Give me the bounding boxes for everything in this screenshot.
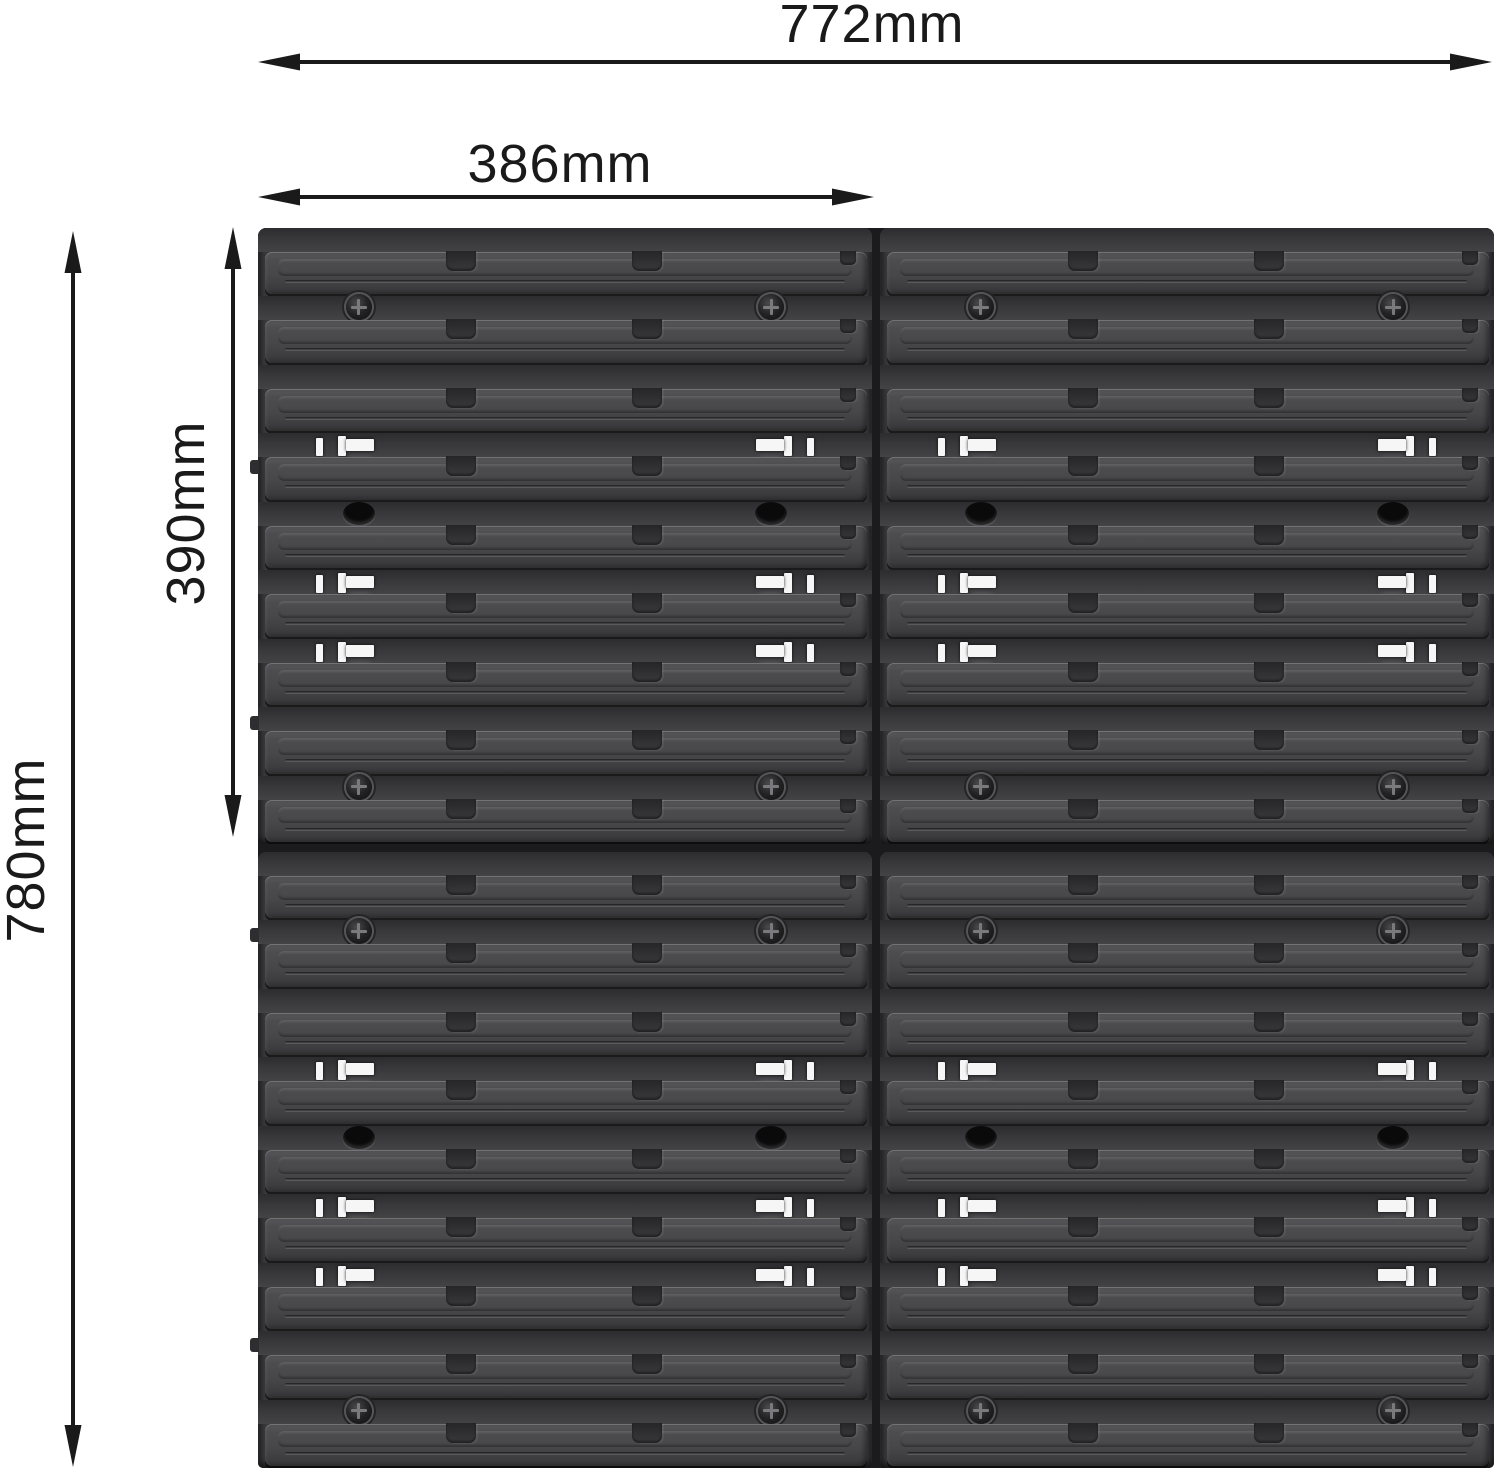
slat-row bbox=[880, 1194, 1494, 1262]
slat bbox=[265, 731, 867, 773]
slat-notch bbox=[1068, 943, 1098, 963]
slat-notch bbox=[1068, 251, 1098, 271]
slat-row bbox=[258, 707, 872, 775]
slat bbox=[265, 944, 867, 986]
slat bbox=[265, 389, 867, 431]
accessory-slot bbox=[784, 1266, 792, 1286]
accessory-slot-group bbox=[752, 571, 814, 593]
accessory-slot bbox=[338, 1060, 346, 1080]
slat bbox=[887, 663, 1489, 705]
slat-notch bbox=[840, 1286, 856, 1300]
slat bbox=[265, 1355, 867, 1397]
slat-notch bbox=[632, 525, 662, 545]
accessory-slot-group bbox=[1374, 1264, 1436, 1286]
accessory-slot-group bbox=[1374, 1058, 1436, 1080]
accessory-slot bbox=[1406, 1060, 1414, 1080]
accessory-slot bbox=[968, 1269, 996, 1281]
accessory-slot-group bbox=[752, 1195, 814, 1217]
accessory-slot bbox=[784, 1060, 792, 1080]
slat-notch bbox=[1068, 525, 1098, 545]
slat-ridge bbox=[278, 670, 852, 687]
half-width-label: 386mm bbox=[410, 136, 710, 192]
accessory-slot bbox=[1406, 1266, 1414, 1286]
accessory-slot bbox=[1406, 642, 1414, 662]
slat-ridge bbox=[278, 1431, 852, 1448]
slat-row bbox=[258, 502, 872, 570]
slat-notch bbox=[840, 456, 856, 470]
slat-notch bbox=[1254, 662, 1284, 682]
slat-notch bbox=[1462, 943, 1478, 957]
slat-groove bbox=[907, 972, 1467, 975]
mounting-screw-icon bbox=[968, 774, 994, 800]
accessory-slot bbox=[1378, 645, 1406, 657]
slat-recess bbox=[880, 1400, 1494, 1424]
slat-notch bbox=[632, 593, 662, 613]
slat bbox=[887, 457, 1489, 499]
slat-recess bbox=[258, 639, 872, 663]
accessory-slot bbox=[756, 576, 784, 588]
slat-recess bbox=[880, 776, 1494, 800]
mounting-screw-icon bbox=[758, 918, 784, 944]
slat-ridge bbox=[278, 883, 852, 900]
slat-recess bbox=[880, 365, 1494, 389]
slat-notch bbox=[1254, 730, 1284, 750]
accessory-slot bbox=[338, 1266, 346, 1286]
slat-ridge bbox=[900, 1088, 1474, 1105]
mounting-hole bbox=[965, 1126, 997, 1149]
slat-recess bbox=[880, 920, 1494, 944]
accessory-slot bbox=[960, 1266, 968, 1286]
accessory-slot-group bbox=[316, 434, 378, 456]
slat-notch bbox=[1254, 456, 1284, 476]
slat-notch bbox=[632, 456, 662, 476]
slat-groove bbox=[907, 1041, 1467, 1044]
slat-notch bbox=[1462, 1423, 1478, 1437]
slat-notch bbox=[840, 593, 856, 607]
accessory-slot bbox=[807, 1199, 814, 1217]
slat-recess bbox=[880, 989, 1494, 1013]
accessory-slot bbox=[316, 438, 323, 456]
slat-groove bbox=[907, 280, 1467, 283]
slat-ridge bbox=[900, 883, 1474, 900]
slat-row bbox=[258, 296, 872, 364]
accessory-slot bbox=[968, 439, 996, 451]
slat-notch bbox=[632, 1080, 662, 1100]
accessory-slot bbox=[938, 644, 945, 662]
accessory-slot bbox=[807, 1062, 814, 1080]
accessory-slot bbox=[960, 573, 968, 593]
slat-row bbox=[258, 1057, 872, 1125]
slat-row bbox=[880, 1057, 1494, 1125]
slat bbox=[887, 876, 1489, 918]
slat-notch bbox=[1462, 662, 1478, 676]
slat-ridge bbox=[900, 396, 1474, 413]
slat-groove bbox=[285, 622, 845, 625]
slat-ridge bbox=[900, 738, 1474, 755]
slat-notch bbox=[1068, 456, 1098, 476]
slat-groove bbox=[285, 972, 845, 975]
slat-notch bbox=[1254, 319, 1284, 339]
slat-groove bbox=[907, 1109, 1467, 1112]
slat-row bbox=[880, 296, 1494, 364]
accessory-slot-group bbox=[938, 1264, 1000, 1286]
slat-groove bbox=[907, 554, 1467, 557]
screw-slot bbox=[357, 923, 360, 939]
screw-slot bbox=[357, 1403, 360, 1419]
slat-groove bbox=[285, 348, 845, 351]
slat-recess bbox=[880, 502, 1494, 526]
slat-notch bbox=[840, 319, 856, 333]
slat-recess bbox=[258, 989, 872, 1013]
accessory-slot bbox=[1429, 1268, 1436, 1286]
slat-groove bbox=[285, 828, 845, 831]
slat-notch bbox=[632, 1012, 662, 1032]
slat-ridge bbox=[278, 464, 852, 481]
slat-recess bbox=[258, 1263, 872, 1287]
slat-ridge bbox=[278, 1294, 852, 1311]
slat-ridge bbox=[900, 327, 1474, 344]
accessory-slot bbox=[316, 644, 323, 662]
slat bbox=[265, 252, 867, 294]
slat-notch bbox=[840, 730, 856, 744]
total-width-arrow bbox=[256, 50, 1494, 74]
screw-slot bbox=[979, 299, 982, 315]
slat-notch bbox=[840, 525, 856, 539]
slat-groove bbox=[907, 417, 1467, 420]
accessory-slot bbox=[756, 1269, 784, 1281]
slat-notch bbox=[1462, 1217, 1478, 1231]
slat-ridge bbox=[900, 1157, 1474, 1174]
slat-notch bbox=[1462, 593, 1478, 607]
slat-ridge bbox=[278, 1157, 852, 1174]
accessory-slot bbox=[784, 642, 792, 662]
accessory-slot-group bbox=[752, 434, 814, 456]
accessory-slot bbox=[960, 642, 968, 662]
mounting-screw-icon bbox=[968, 1398, 994, 1424]
accessory-slot bbox=[338, 573, 346, 593]
half-width-arrow bbox=[256, 185, 876, 209]
accessory-slot-group bbox=[316, 1195, 378, 1217]
slat-row bbox=[258, 852, 872, 920]
screw-slot bbox=[1392, 923, 1395, 939]
slat-row bbox=[258, 228, 872, 296]
half-height-arrow bbox=[221, 225, 245, 839]
slat-notch bbox=[632, 1286, 662, 1306]
slat-row bbox=[880, 570, 1494, 638]
slat-notch bbox=[1254, 1080, 1284, 1100]
slat-notch bbox=[446, 799, 476, 819]
mounting-screw-icon bbox=[758, 774, 784, 800]
slat-notch bbox=[1462, 1286, 1478, 1300]
accessory-slot bbox=[968, 1063, 996, 1075]
slat-notch bbox=[840, 875, 856, 889]
slat-notch bbox=[446, 875, 476, 895]
accessory-slot bbox=[968, 576, 996, 588]
slat-groove bbox=[285, 1178, 845, 1181]
slat-recess bbox=[258, 707, 872, 731]
slat-notch bbox=[446, 1354, 476, 1374]
slat-notch bbox=[840, 251, 856, 265]
slat-notch bbox=[1462, 1012, 1478, 1026]
accessory-slot bbox=[938, 1268, 945, 1286]
accessory-slot bbox=[960, 1197, 968, 1217]
accessory-slot bbox=[1378, 439, 1406, 451]
slat-groove bbox=[907, 485, 1467, 488]
slat-notch bbox=[1068, 319, 1098, 339]
slat-recess bbox=[880, 296, 1494, 320]
screw-slot bbox=[770, 299, 773, 315]
slat-notch bbox=[840, 1423, 856, 1437]
accessory-slot bbox=[807, 644, 814, 662]
slat-ridge bbox=[900, 1294, 1474, 1311]
slat-notch bbox=[446, 319, 476, 339]
total-width-label: 772mm bbox=[722, 0, 1022, 52]
slatwall-panel bbox=[880, 228, 1494, 844]
mounting-screw-icon bbox=[1380, 774, 1406, 800]
slat-ridge bbox=[900, 533, 1474, 550]
slat-row bbox=[258, 639, 872, 707]
slat-recess bbox=[880, 852, 1494, 876]
slat-recess bbox=[880, 1126, 1494, 1150]
accessory-slot-group bbox=[752, 1264, 814, 1286]
screw-slot bbox=[979, 779, 982, 795]
slat-notch bbox=[1254, 1354, 1284, 1374]
slat-row bbox=[880, 1331, 1494, 1399]
slat-notch bbox=[840, 943, 856, 957]
slat-groove bbox=[285, 904, 845, 907]
slat-notch bbox=[840, 1080, 856, 1094]
slatwall-panel bbox=[258, 228, 872, 844]
slat-recess bbox=[880, 1057, 1494, 1081]
accessory-slot bbox=[938, 575, 945, 593]
slat-ridge bbox=[278, 327, 852, 344]
slat-notch bbox=[446, 251, 476, 271]
slat-row bbox=[258, 365, 872, 433]
accessory-slot bbox=[807, 1268, 814, 1286]
slat bbox=[887, 731, 1489, 773]
slat bbox=[265, 1013, 867, 1055]
accessory-slot bbox=[346, 1063, 374, 1075]
slat bbox=[887, 1287, 1489, 1329]
accessory-slot bbox=[1406, 573, 1414, 593]
slat-ridge bbox=[278, 1020, 852, 1037]
slat-row bbox=[880, 776, 1494, 844]
accessory-slot-group bbox=[938, 571, 1000, 593]
slat-notch bbox=[840, 799, 856, 813]
slat-notch bbox=[446, 1149, 476, 1169]
slat-ridge bbox=[278, 396, 852, 413]
slat-notch bbox=[1462, 1080, 1478, 1094]
screw-slot bbox=[770, 1403, 773, 1419]
slat-ridge bbox=[900, 1020, 1474, 1037]
mounting-tab bbox=[250, 928, 259, 942]
slat bbox=[265, 1287, 867, 1329]
slat-recess bbox=[258, 1331, 872, 1355]
slat-notch bbox=[1068, 662, 1098, 682]
slat-notch bbox=[632, 875, 662, 895]
slat-notch bbox=[1254, 593, 1284, 613]
slat-notch bbox=[840, 1217, 856, 1231]
slat-notch bbox=[446, 662, 476, 682]
slat-recess bbox=[258, 1057, 872, 1081]
slat-ridge bbox=[278, 1225, 852, 1242]
slat-notch bbox=[1462, 799, 1478, 813]
slat-row bbox=[258, 1263, 872, 1331]
slat-recess bbox=[258, 228, 872, 252]
mounting-tab bbox=[250, 460, 259, 474]
slat-groove bbox=[907, 759, 1467, 762]
slat-notch bbox=[632, 662, 662, 682]
slat-ridge bbox=[900, 1362, 1474, 1379]
slat-ridge bbox=[900, 1431, 1474, 1448]
accessory-slot bbox=[756, 1200, 784, 1212]
accessory-slot bbox=[1429, 575, 1436, 593]
slat bbox=[265, 663, 867, 705]
accessory-slot bbox=[1429, 1199, 1436, 1217]
slat-groove bbox=[285, 1246, 845, 1249]
slat-groove bbox=[285, 759, 845, 762]
total-height-label: 780mm bbox=[0, 700, 54, 1000]
slat-notch bbox=[632, 1354, 662, 1374]
slat-ridge bbox=[900, 464, 1474, 481]
slat-notch bbox=[840, 388, 856, 402]
slat-notch bbox=[1462, 319, 1478, 333]
slat-notch bbox=[632, 1423, 662, 1443]
accessory-slot-group bbox=[938, 640, 1000, 662]
slat-notch bbox=[1462, 875, 1478, 889]
total-height-arrow bbox=[61, 229, 85, 1469]
accessory-slot bbox=[346, 1269, 374, 1281]
slat bbox=[265, 594, 867, 636]
slat-groove bbox=[907, 1315, 1467, 1318]
accessory-slot bbox=[1378, 1269, 1406, 1281]
slat-groove bbox=[907, 1178, 1467, 1181]
slat-ridge bbox=[278, 951, 852, 968]
slat-row bbox=[258, 1194, 872, 1262]
slat-ridge bbox=[278, 601, 852, 618]
slat-recess bbox=[880, 1194, 1494, 1218]
mounting-screw-icon bbox=[346, 294, 372, 320]
slat bbox=[265, 1424, 867, 1466]
accessory-slot bbox=[938, 1062, 945, 1080]
slat bbox=[887, 389, 1489, 431]
slat-ridge bbox=[278, 1088, 852, 1105]
slat bbox=[887, 1424, 1489, 1466]
accessory-slot bbox=[756, 645, 784, 657]
slat-notch bbox=[446, 525, 476, 545]
slat-notch bbox=[1068, 730, 1098, 750]
accessory-slot-group bbox=[1374, 571, 1436, 593]
screw-slot bbox=[979, 1403, 982, 1419]
accessory-slot bbox=[938, 438, 945, 456]
accessory-slot bbox=[1406, 1197, 1414, 1217]
mounting-tab bbox=[250, 1338, 259, 1352]
slat-recess bbox=[258, 365, 872, 389]
slat-notch bbox=[1068, 875, 1098, 895]
slat-ridge bbox=[900, 670, 1474, 687]
mounting-screw-icon bbox=[346, 1398, 372, 1424]
slat bbox=[265, 1081, 867, 1123]
slat-notch bbox=[446, 1217, 476, 1237]
slat bbox=[887, 1013, 1489, 1055]
slat-row bbox=[880, 1400, 1494, 1468]
slat bbox=[887, 252, 1489, 294]
accessory-slot bbox=[1378, 1200, 1406, 1212]
slat-recess bbox=[258, 1400, 872, 1424]
slat-recess bbox=[880, 707, 1494, 731]
accessory-slot bbox=[784, 573, 792, 593]
mounting-screw-icon bbox=[758, 294, 784, 320]
slat-row bbox=[880, 228, 1494, 296]
screw-slot bbox=[1392, 779, 1395, 795]
screw-slot bbox=[1392, 1403, 1395, 1419]
slat-ridge bbox=[278, 533, 852, 550]
slat-notch bbox=[446, 1286, 476, 1306]
slat bbox=[887, 1355, 1489, 1397]
slat bbox=[887, 1081, 1489, 1123]
accessory-slot-group bbox=[1374, 434, 1436, 456]
slat-recess bbox=[258, 852, 872, 876]
mounting-tab bbox=[250, 716, 259, 730]
slat-groove bbox=[907, 1452, 1467, 1455]
slat-row bbox=[258, 776, 872, 844]
slat-ridge bbox=[900, 807, 1474, 824]
slat-notch bbox=[1254, 1149, 1284, 1169]
slat-notch bbox=[1068, 1149, 1098, 1169]
mounting-screw-icon bbox=[968, 294, 994, 320]
mounting-screw-icon bbox=[968, 918, 994, 944]
mounting-screw-icon bbox=[758, 1398, 784, 1424]
mounting-hole bbox=[965, 502, 997, 525]
accessory-slot-group bbox=[938, 1195, 1000, 1217]
accessory-slot-group bbox=[316, 571, 378, 593]
screw-slot bbox=[357, 779, 360, 795]
slat-recess bbox=[258, 296, 872, 320]
slat-groove bbox=[907, 1246, 1467, 1249]
slat-groove bbox=[285, 1452, 845, 1455]
accessory-slot bbox=[960, 436, 968, 456]
slat-notch bbox=[1462, 1354, 1478, 1368]
slat-recess bbox=[880, 228, 1494, 252]
slat-notch bbox=[446, 593, 476, 613]
slat-notch bbox=[1068, 1080, 1098, 1100]
accessory-slot-group bbox=[938, 434, 1000, 456]
accessory-slot bbox=[338, 1197, 346, 1217]
mounting-screw-icon bbox=[346, 774, 372, 800]
slat-row bbox=[258, 1400, 872, 1468]
slat-groove bbox=[907, 622, 1467, 625]
slat-notch bbox=[840, 1149, 856, 1163]
slat bbox=[265, 876, 867, 918]
slat-groove bbox=[907, 348, 1467, 351]
slat-notch bbox=[1068, 593, 1098, 613]
slat-row bbox=[258, 920, 872, 988]
slat-row bbox=[880, 639, 1494, 707]
slat bbox=[887, 800, 1489, 842]
slat-notch bbox=[1254, 1217, 1284, 1237]
slat-notch bbox=[632, 1149, 662, 1169]
slat-notch bbox=[632, 251, 662, 271]
slat-notch bbox=[1068, 388, 1098, 408]
slat-groove bbox=[285, 280, 845, 283]
slat bbox=[265, 457, 867, 499]
slat-notch bbox=[840, 1012, 856, 1026]
slat-recess bbox=[880, 1263, 1494, 1287]
accessory-slot bbox=[316, 575, 323, 593]
slat-notch bbox=[1462, 730, 1478, 744]
slat-groove bbox=[285, 1315, 845, 1318]
slat-ridge bbox=[900, 951, 1474, 968]
